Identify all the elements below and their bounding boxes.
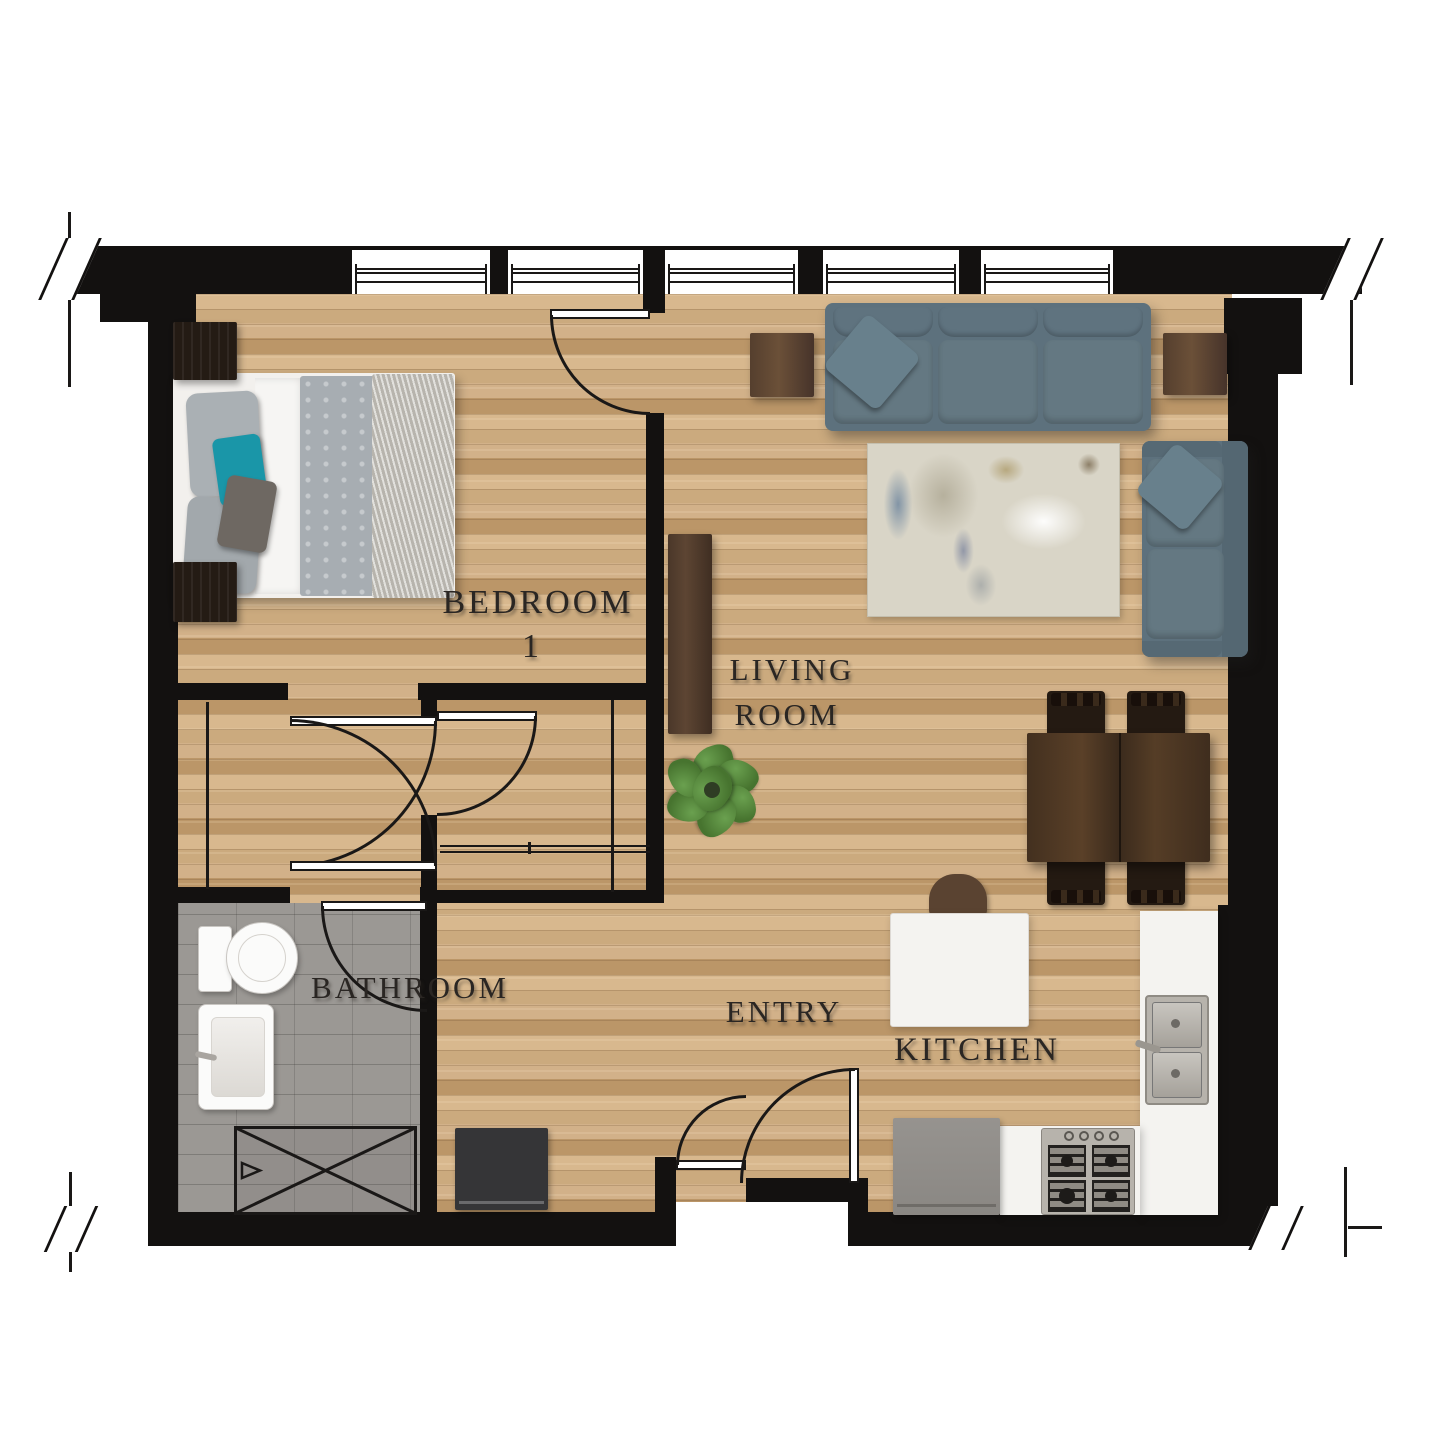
bed-duvet: [300, 376, 380, 596]
label-bedroom: BEDROOM: [442, 586, 633, 620]
label-entry: ENTRY: [726, 996, 843, 1027]
dining-chair-4: [1127, 858, 1185, 905]
label-bathroom: BATHROOM: [311, 972, 509, 1003]
loveseat-back: [1222, 441, 1248, 657]
toilet-bowl: [226, 922, 298, 994]
wic-rod-line-2: [440, 851, 650, 853]
window-glass: [511, 264, 640, 294]
side-table-right: [1163, 333, 1227, 395]
sofa-seat-cushion: [938, 340, 1038, 424]
dining-table: [1027, 733, 1210, 862]
wic-rod-line-1: [440, 845, 650, 847]
wall-hall-top-left: [178, 683, 288, 700]
window-4: [823, 250, 959, 294]
wall-wic-bottom: [437, 890, 653, 903]
sofa-seat-cushion: [1043, 340, 1143, 424]
nightstand-bottom: [173, 562, 237, 622]
wall-bathroom-top: [178, 887, 290, 903]
window-glass: [668, 264, 795, 294]
dining-chair-1: [1047, 691, 1105, 737]
nightstand-top: [173, 322, 237, 380]
kitchen-island: [890, 913, 1029, 1027]
washer-unit: [455, 1128, 548, 1210]
loveseat-arm-bottom: [1142, 641, 1222, 657]
label-living-line2: ROOM: [734, 699, 839, 730]
kitchen-sink: [1145, 995, 1209, 1105]
shower-x-marks: [234, 1126, 417, 1215]
window-5: [981, 250, 1113, 294]
bed-throw-blanket: [372, 374, 454, 598]
window-glass: [355, 264, 487, 294]
dining-chair-3: [1047, 858, 1105, 905]
label-kitchen: KITCHEN: [894, 1034, 1060, 1067]
wall-hall-top-right: [418, 683, 649, 700]
window-3: [665, 250, 798, 294]
wall-wic-jamb-upper: [421, 697, 437, 717]
witness-line-bottom-right-h: [1348, 1226, 1382, 1229]
entry-recess-exterior: [676, 1202, 848, 1246]
refrigerator: [893, 1118, 1000, 1215]
wall-bedroom-living: [646, 413, 664, 903]
wall-entry-jamb: [655, 1157, 676, 1212]
label-living-line1: LIVING: [730, 654, 855, 685]
floor-plan: BEDROOM 1 LIVING ROOM BATHROOM ENTRY KIT…: [0, 0, 1440, 1440]
wall-bottom-left: [148, 1212, 676, 1246]
shower: [234, 1126, 417, 1215]
wall-top-right-bump: [1224, 298, 1302, 374]
potted-plant: [666, 746, 758, 834]
sofa-back-cushion: [1043, 307, 1143, 337]
wall-break-bottom-left: [44, 1206, 98, 1252]
hall-closet-line: [206, 702, 209, 889]
side-table-left: [750, 333, 814, 397]
loveseat-seat-cushion: [1146, 549, 1224, 639]
cooktop: [1041, 1128, 1135, 1215]
wall-right-kitchen: [1218, 905, 1238, 1246]
area-rug: [867, 443, 1120, 617]
label-bedroom-number: 1: [522, 630, 542, 664]
island-chair: [929, 874, 987, 918]
console-table: [668, 534, 712, 734]
window-glass: [826, 264, 956, 294]
window-glass: [984, 264, 1110, 294]
sofa: [825, 303, 1151, 431]
wic-rod-tick: [528, 842, 531, 854]
loveseat: [1142, 441, 1248, 657]
bathroom-sink: [198, 1004, 274, 1110]
window-2: [508, 250, 643, 294]
dining-chair-2: [1127, 691, 1185, 737]
witness-line-bottom-right-v: [1344, 1167, 1347, 1257]
window-1: [352, 250, 490, 294]
sofa-back-cushion: [938, 307, 1038, 337]
plant-pot-center: [704, 782, 720, 798]
wic-divider-line: [611, 700, 614, 892]
